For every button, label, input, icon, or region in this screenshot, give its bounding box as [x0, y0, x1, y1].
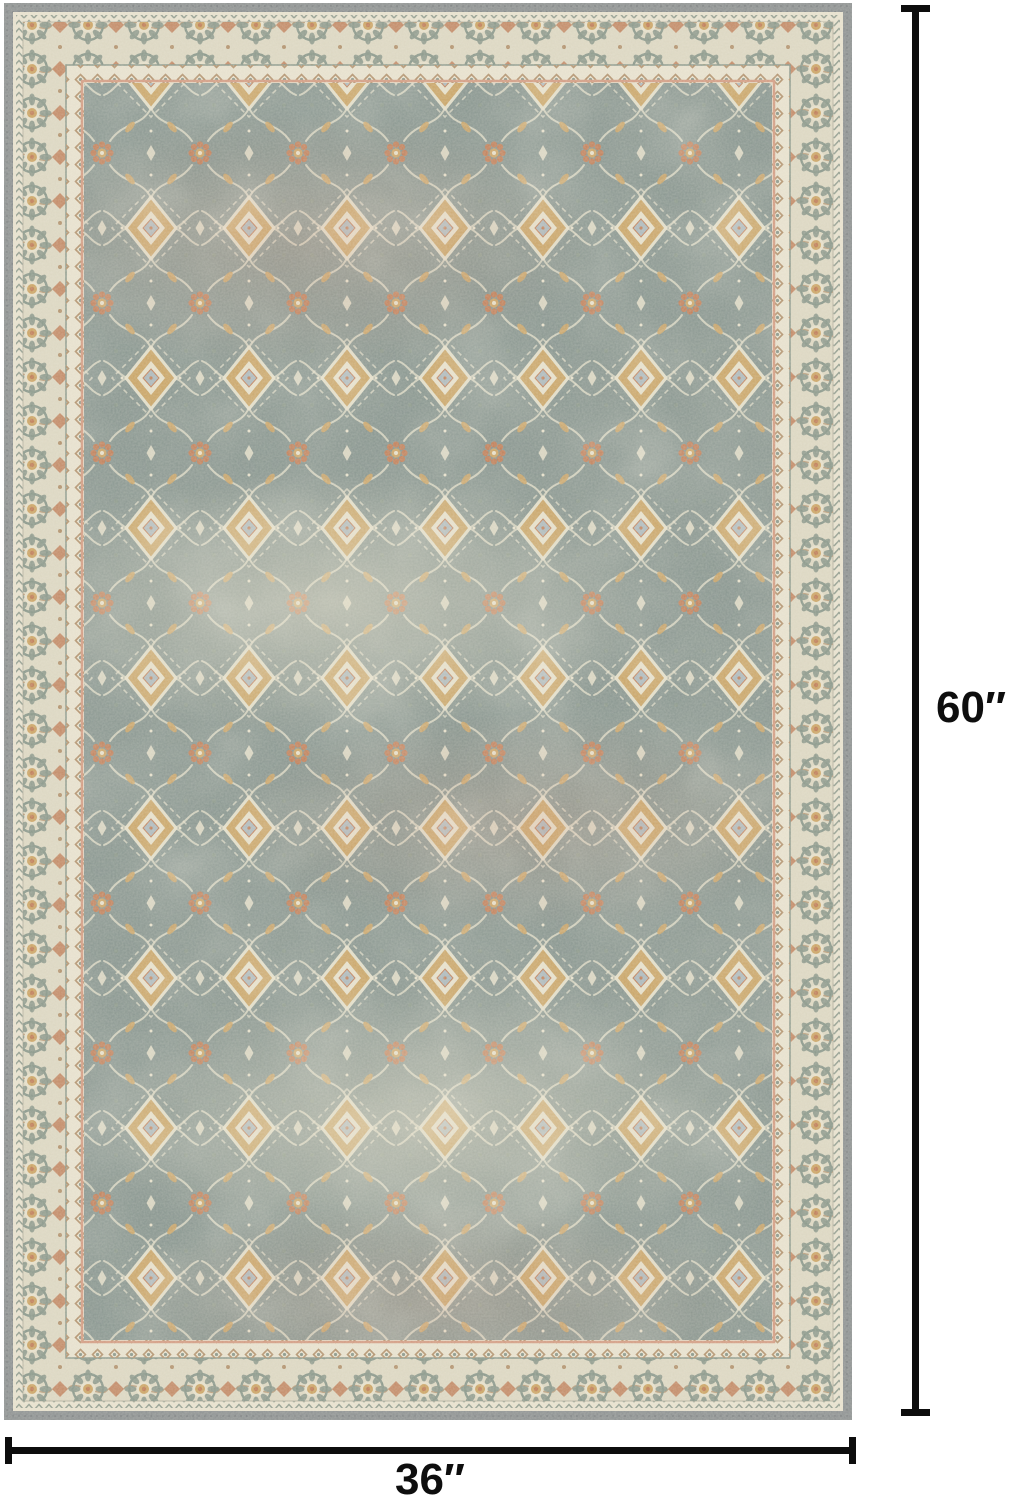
width-dimension-label: 36″: [395, 1458, 465, 1500]
width-dimension-line: [5, 1447, 856, 1454]
product-image-canvas: 60″ 36″: [0, 0, 1014, 1500]
height-dimension-line: [912, 5, 919, 1416]
height-dimension-cap-bottom: [901, 1409, 930, 1416]
height-dimension-label: 60″: [936, 686, 1006, 730]
rug-graphic: [4, 3, 852, 1420]
height-dimension: [901, 5, 930, 1416]
rug-image: [4, 3, 852, 1420]
width-dimension-cap-right: [849, 1437, 856, 1464]
